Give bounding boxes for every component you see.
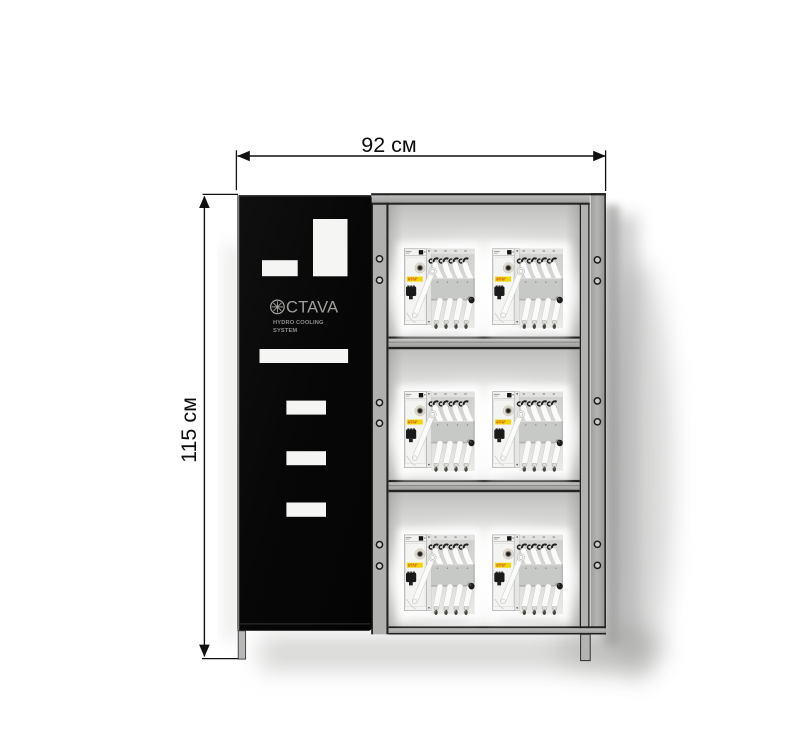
svg-text:92 см: 92 см [361, 133, 416, 157]
svg-text:CTAVA: CTAVA [286, 298, 338, 316]
svg-text:115 см: 115 см [177, 397, 201, 463]
svg-text:SYSTEM: SYSTEM [273, 328, 297, 334]
svg-text:HYDRO COOLING: HYDRO COOLING [273, 320, 324, 326]
